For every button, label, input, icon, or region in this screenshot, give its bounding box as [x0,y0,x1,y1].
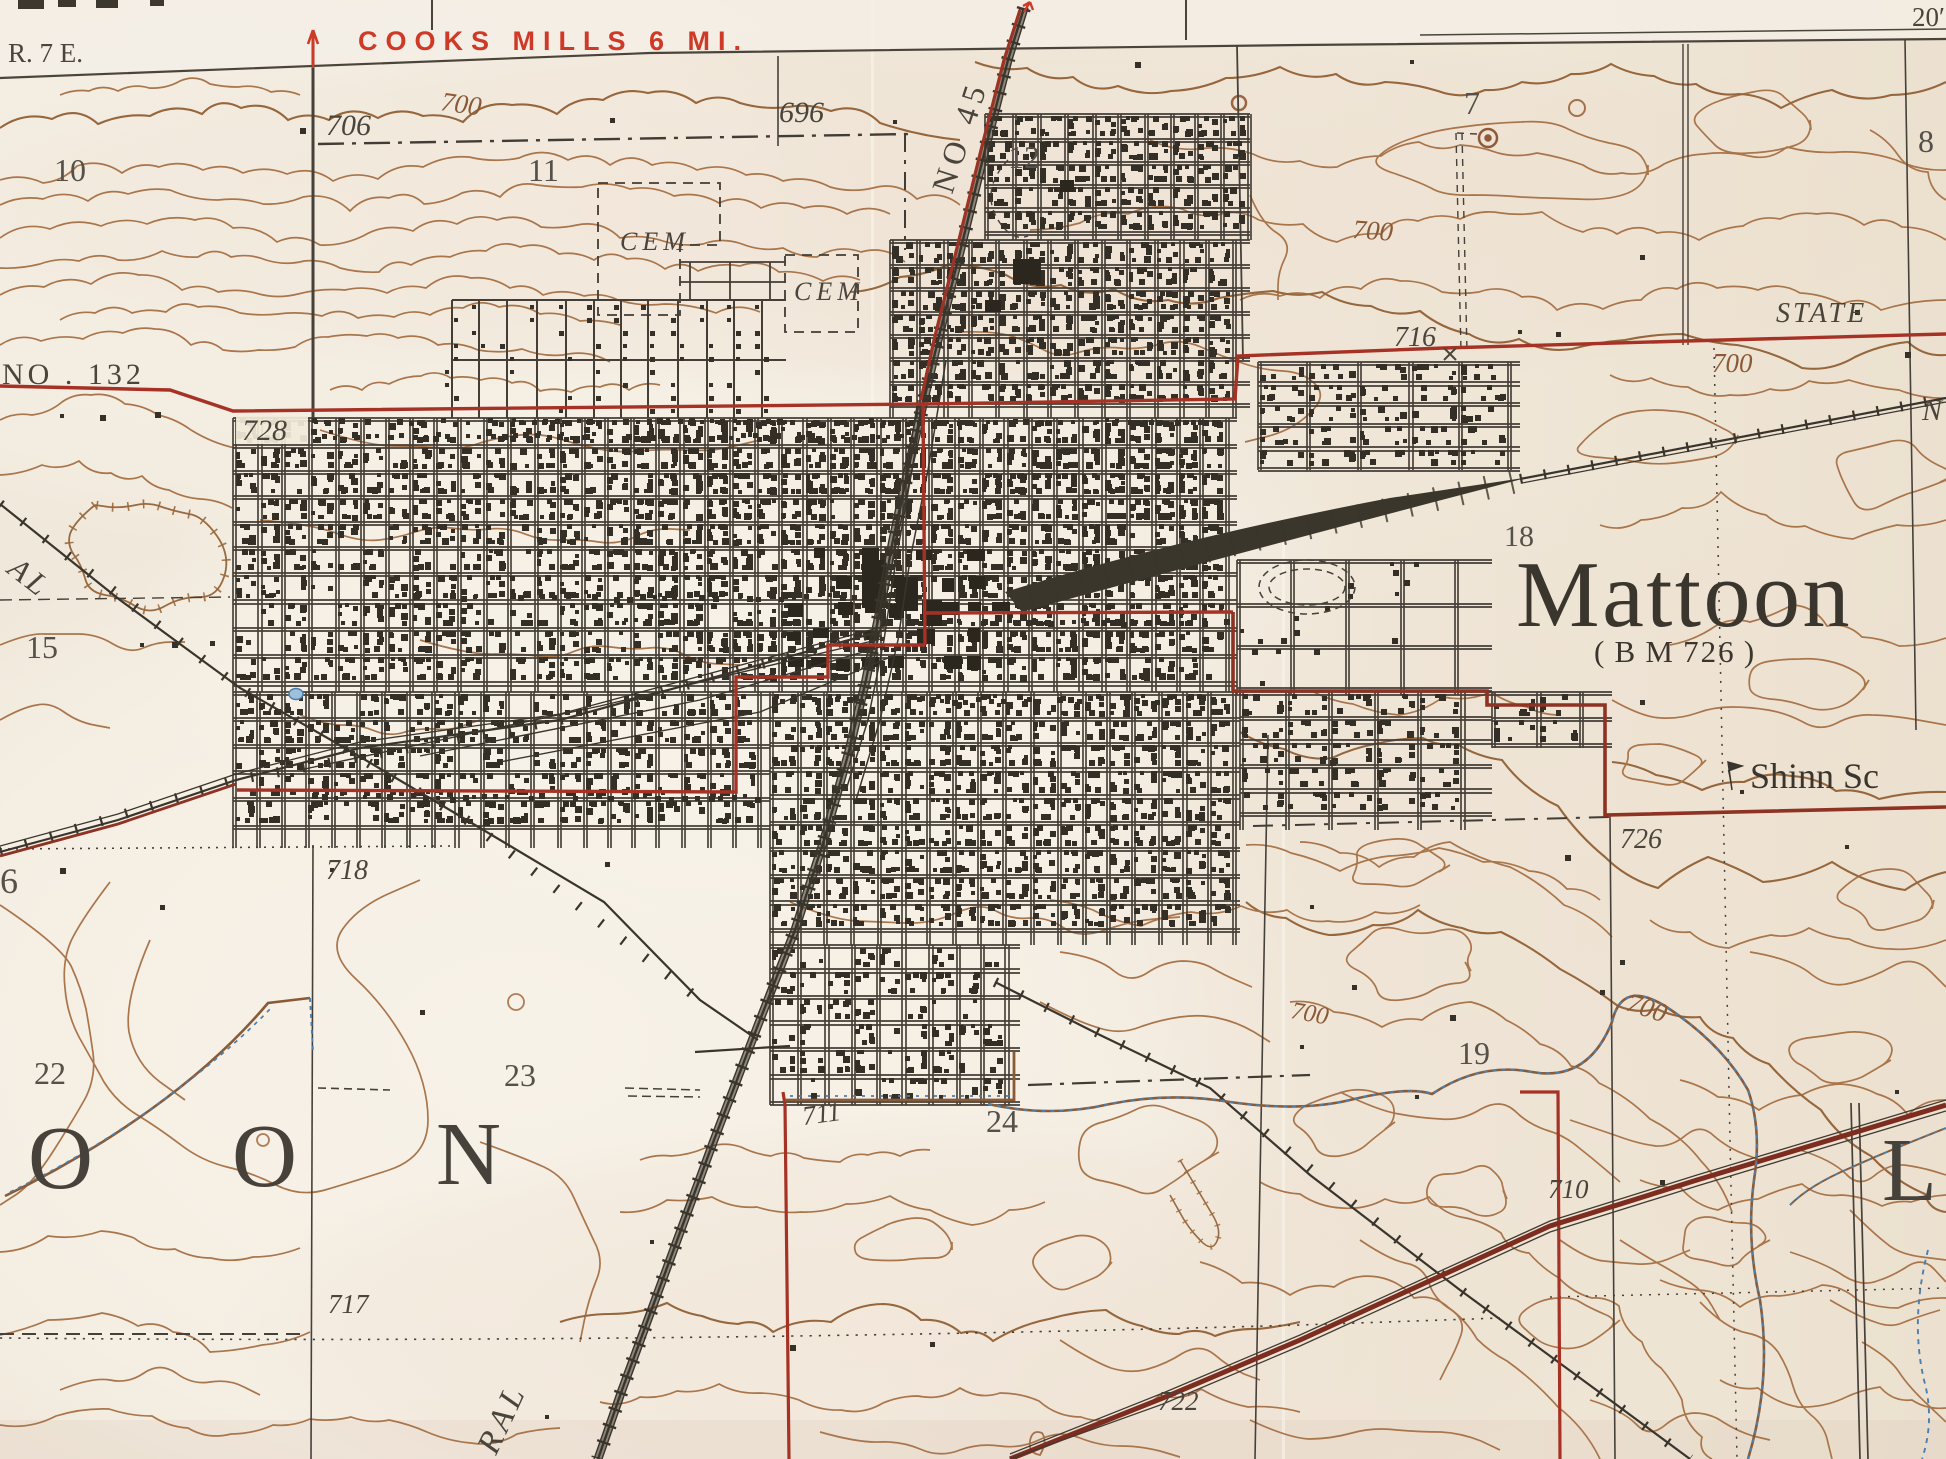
svg-text:15: 15 [26,629,58,665]
svg-text:STATE: STATE [1776,298,1867,329]
svg-text:20′: 20′ [1912,2,1945,32]
svg-text:711: 711 [800,1096,842,1131]
svg-text:11: 11 [528,152,559,188]
svg-text:CEM: CEM [620,227,690,256]
svg-text:23: 23 [504,1057,536,1093]
svg-text:6: 6 [0,861,18,901]
svg-text:O: O [28,1109,93,1208]
svg-text:717: 717 [328,1289,370,1319]
svg-text:8: 8 [1918,123,1934,159]
svg-text:10: 10 [54,152,86,188]
svg-text:700: 700 [439,86,484,121]
svg-text:726: 726 [1620,824,1662,855]
svg-text:22: 22 [34,1055,66,1091]
svg-text:700: 700 [1712,348,1753,378]
svg-text:716: 716 [1394,322,1436,353]
svg-text:12: 12 [1008,139,1040,175]
svg-text:706: 706 [326,109,371,142]
svg-text:( B M 726 ): ( B M 726 ) [1594,634,1756,669]
svg-text:COOKS MILLS 6 MI.: COOKS MILLS 6 MI. [358,26,749,56]
svg-text:728: 728 [242,414,287,447]
svg-text:O: O [232,1107,297,1206]
svg-text:710: 710 [1548,1174,1589,1204]
svg-text:700: 700 [1352,214,1395,247]
svg-text:Shinn Sc: Shinn Sc [1750,756,1879,796]
svg-text:CEM: CEM [794,277,864,306]
svg-text:696: 696 [779,96,824,129]
svg-text:19: 19 [1458,1035,1490,1071]
svg-text:718: 718 [326,855,368,886]
svg-text:L: L [1882,1121,1937,1220]
svg-text:Mattoon: Mattoon [1516,543,1852,647]
svg-text:NO . 132: NO . 132 [2,358,145,391]
svg-text:R. 7 E.: R. 7 E. [8,38,83,68]
svg-text:7: 7 [1464,85,1480,121]
svg-text:N: N [436,1105,501,1204]
svg-text:N: N [1921,394,1944,427]
svg-text:24: 24 [986,1103,1018,1139]
svg-text:722: 722 [1158,1386,1199,1416]
